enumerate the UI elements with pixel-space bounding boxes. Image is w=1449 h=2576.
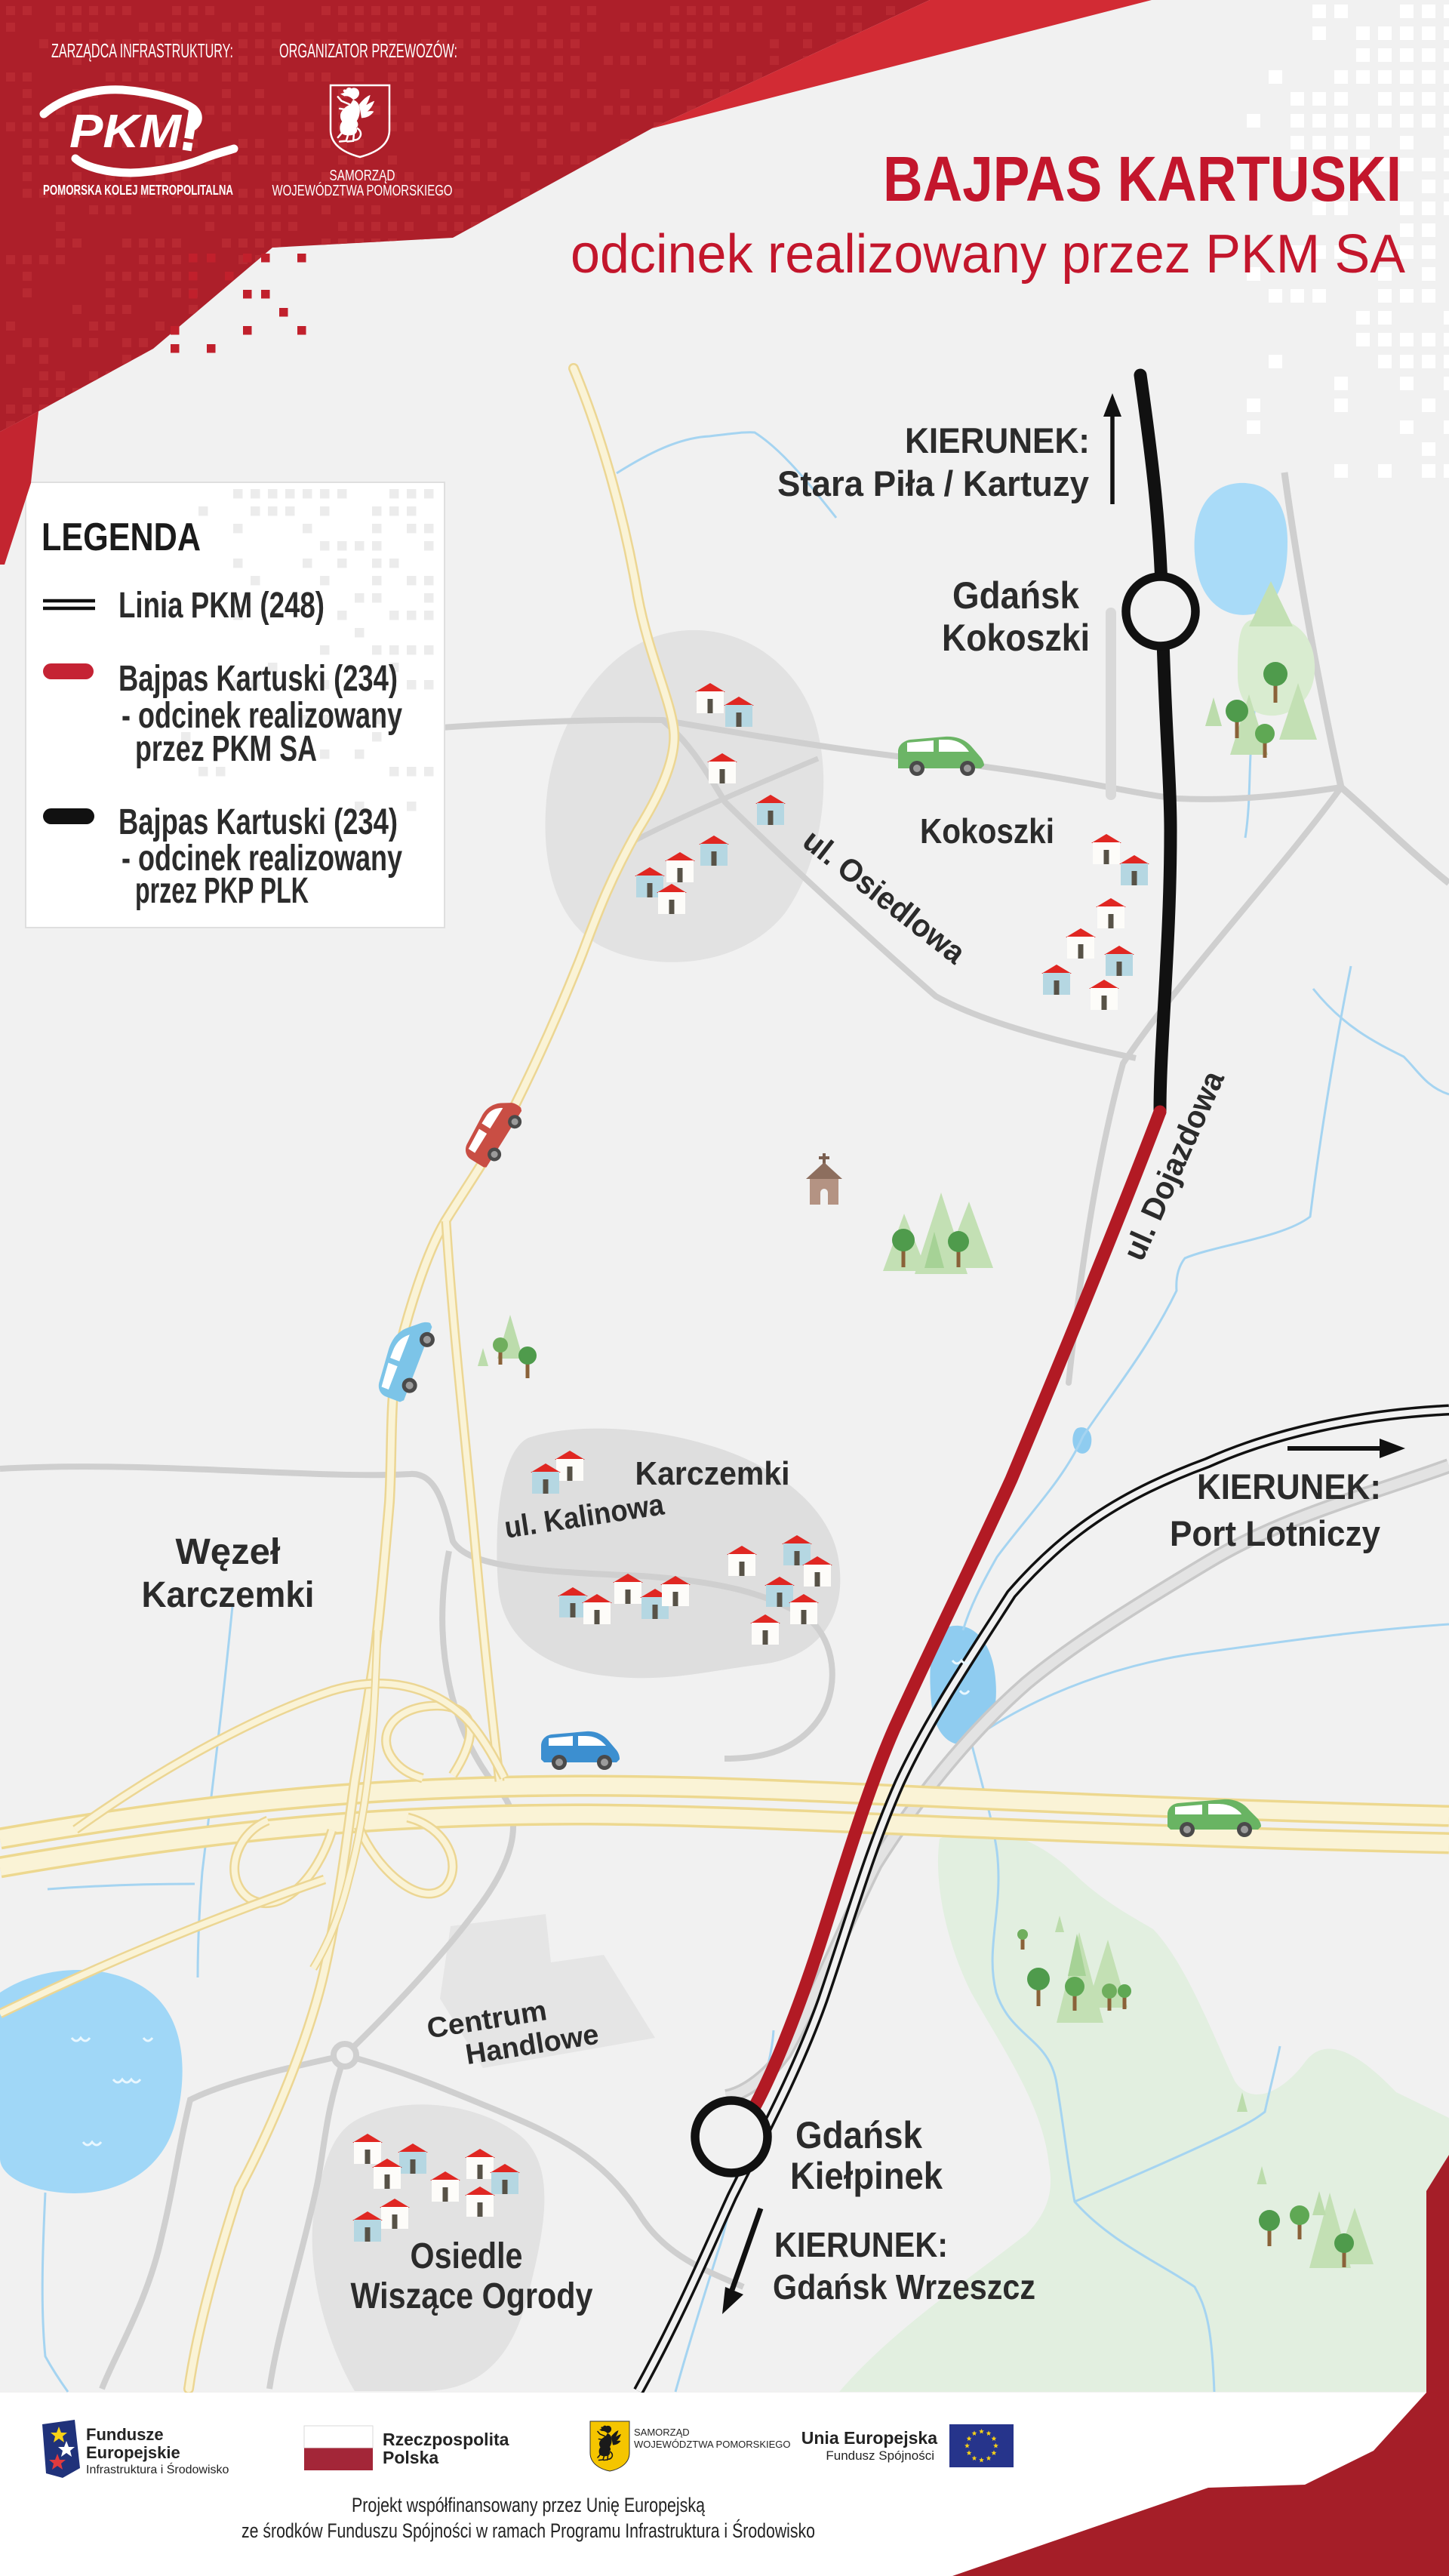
svg-text:KIERUNEK:: KIERUNEK:	[774, 2225, 948, 2264]
svg-text:ZARZĄDCA INFRASTRUKTURY:: ZARZĄDCA INFRASTRUKTURY:	[51, 39, 233, 62]
svg-text:SAMORZĄD: SAMORZĄD	[634, 2427, 690, 2438]
svg-text:Projekt współfinansowany przez: Projekt współfinansowany przez Unię Euro…	[352, 2494, 706, 2516]
svg-text:PKM: PKM	[69, 106, 182, 158]
svg-text:Fundusz Spójności: Fundusz Spójności	[826, 2448, 934, 2463]
svg-text:Linia PKM (248): Linia PKM (248)	[118, 586, 325, 626]
svg-text:Gdańsk Wrzeszcz: Gdańsk Wrzeszcz	[773, 2267, 1035, 2307]
svg-text:Europejskie: Europejskie	[86, 2443, 180, 2462]
svg-text:Unia Europejska: Unia Europejska	[801, 2428, 937, 2448]
svg-text:Stara Piła / Kartuzy: Stara Piła / Kartuzy	[777, 463, 1089, 503]
svg-text:WOJEWÓDZTWA POMORSKIEGO: WOJEWÓDZTWA POMORSKIEGO	[272, 182, 453, 199]
svg-text:LEGENDA: LEGENDA	[42, 516, 201, 559]
svg-text:Karczemki: Karczemki	[635, 1455, 790, 1492]
svg-text:BAJPAS KARTUSKI: BAJPAS KARTUSKI	[883, 143, 1401, 214]
svg-text:Gdańsk: Gdańsk	[952, 574, 1079, 617]
svg-text:KIERUNEK:: KIERUNEK:	[1197, 1467, 1381, 1507]
svg-text:Bajpas Kartuski (234): Bajpas Kartuski (234)	[118, 802, 398, 842]
svg-text:Kiełpinek: Kiełpinek	[790, 2155, 943, 2197]
svg-text:Osiedle: Osiedle	[411, 2236, 523, 2276]
svg-text:Fundusze: Fundusze	[86, 2425, 164, 2444]
svg-text:Port Lotniczy: Port Lotniczy	[1170, 1513, 1380, 1553]
svg-text:Kokoszki: Kokoszki	[942, 617, 1090, 659]
svg-text:ORGANIZATOR PRZEWOZÓW:: ORGANIZATOR PRZEWOZÓW:	[279, 39, 457, 62]
svg-text:SAMORZĄD: SAMORZĄD	[330, 168, 395, 184]
svg-text:ze środków Funduszu Spójności: ze środków Funduszu Spójności w ramach P…	[241, 2518, 815, 2542]
svg-text:Bajpas Kartuski (234): Bajpas Kartuski (234)	[118, 659, 398, 699]
svg-text:odcinek realizowany przez PKM: odcinek realizowany przez PKM SA	[571, 224, 1405, 285]
svg-text:POMORSKA KOLEJ METROPOLITALNA: POMORSKA KOLEJ METROPOLITALNA	[43, 183, 233, 198]
svg-text:WOJEWÓDZTWA POMORSKIEGO: WOJEWÓDZTWA POMORSKIEGO	[634, 2439, 791, 2450]
svg-text:Polska: Polska	[383, 2448, 438, 2467]
svg-text:Wiszące Ogrody: Wiszące Ogrody	[351, 2276, 593, 2316]
svg-text:Gdańsk: Gdańsk	[795, 2114, 922, 2156]
svg-text:Kokoszki: Kokoszki	[920, 811, 1054, 851]
svg-text:przez PKM SA: przez PKM SA	[135, 729, 317, 769]
svg-text:Węzeł: Węzeł	[176, 1532, 281, 1572]
svg-text:Rzeczpospolita: Rzeczpospolita	[383, 2430, 509, 2449]
svg-text:Karczemki: Karczemki	[142, 1575, 315, 1615]
svg-text:KIERUNEK:: KIERUNEK:	[905, 420, 1090, 460]
svg-text:Infrastruktura i Środowisko: Infrastruktura i Środowisko	[86, 2462, 229, 2476]
svg-text:przez PKP PLK: przez PKP PLK	[135, 871, 309, 911]
